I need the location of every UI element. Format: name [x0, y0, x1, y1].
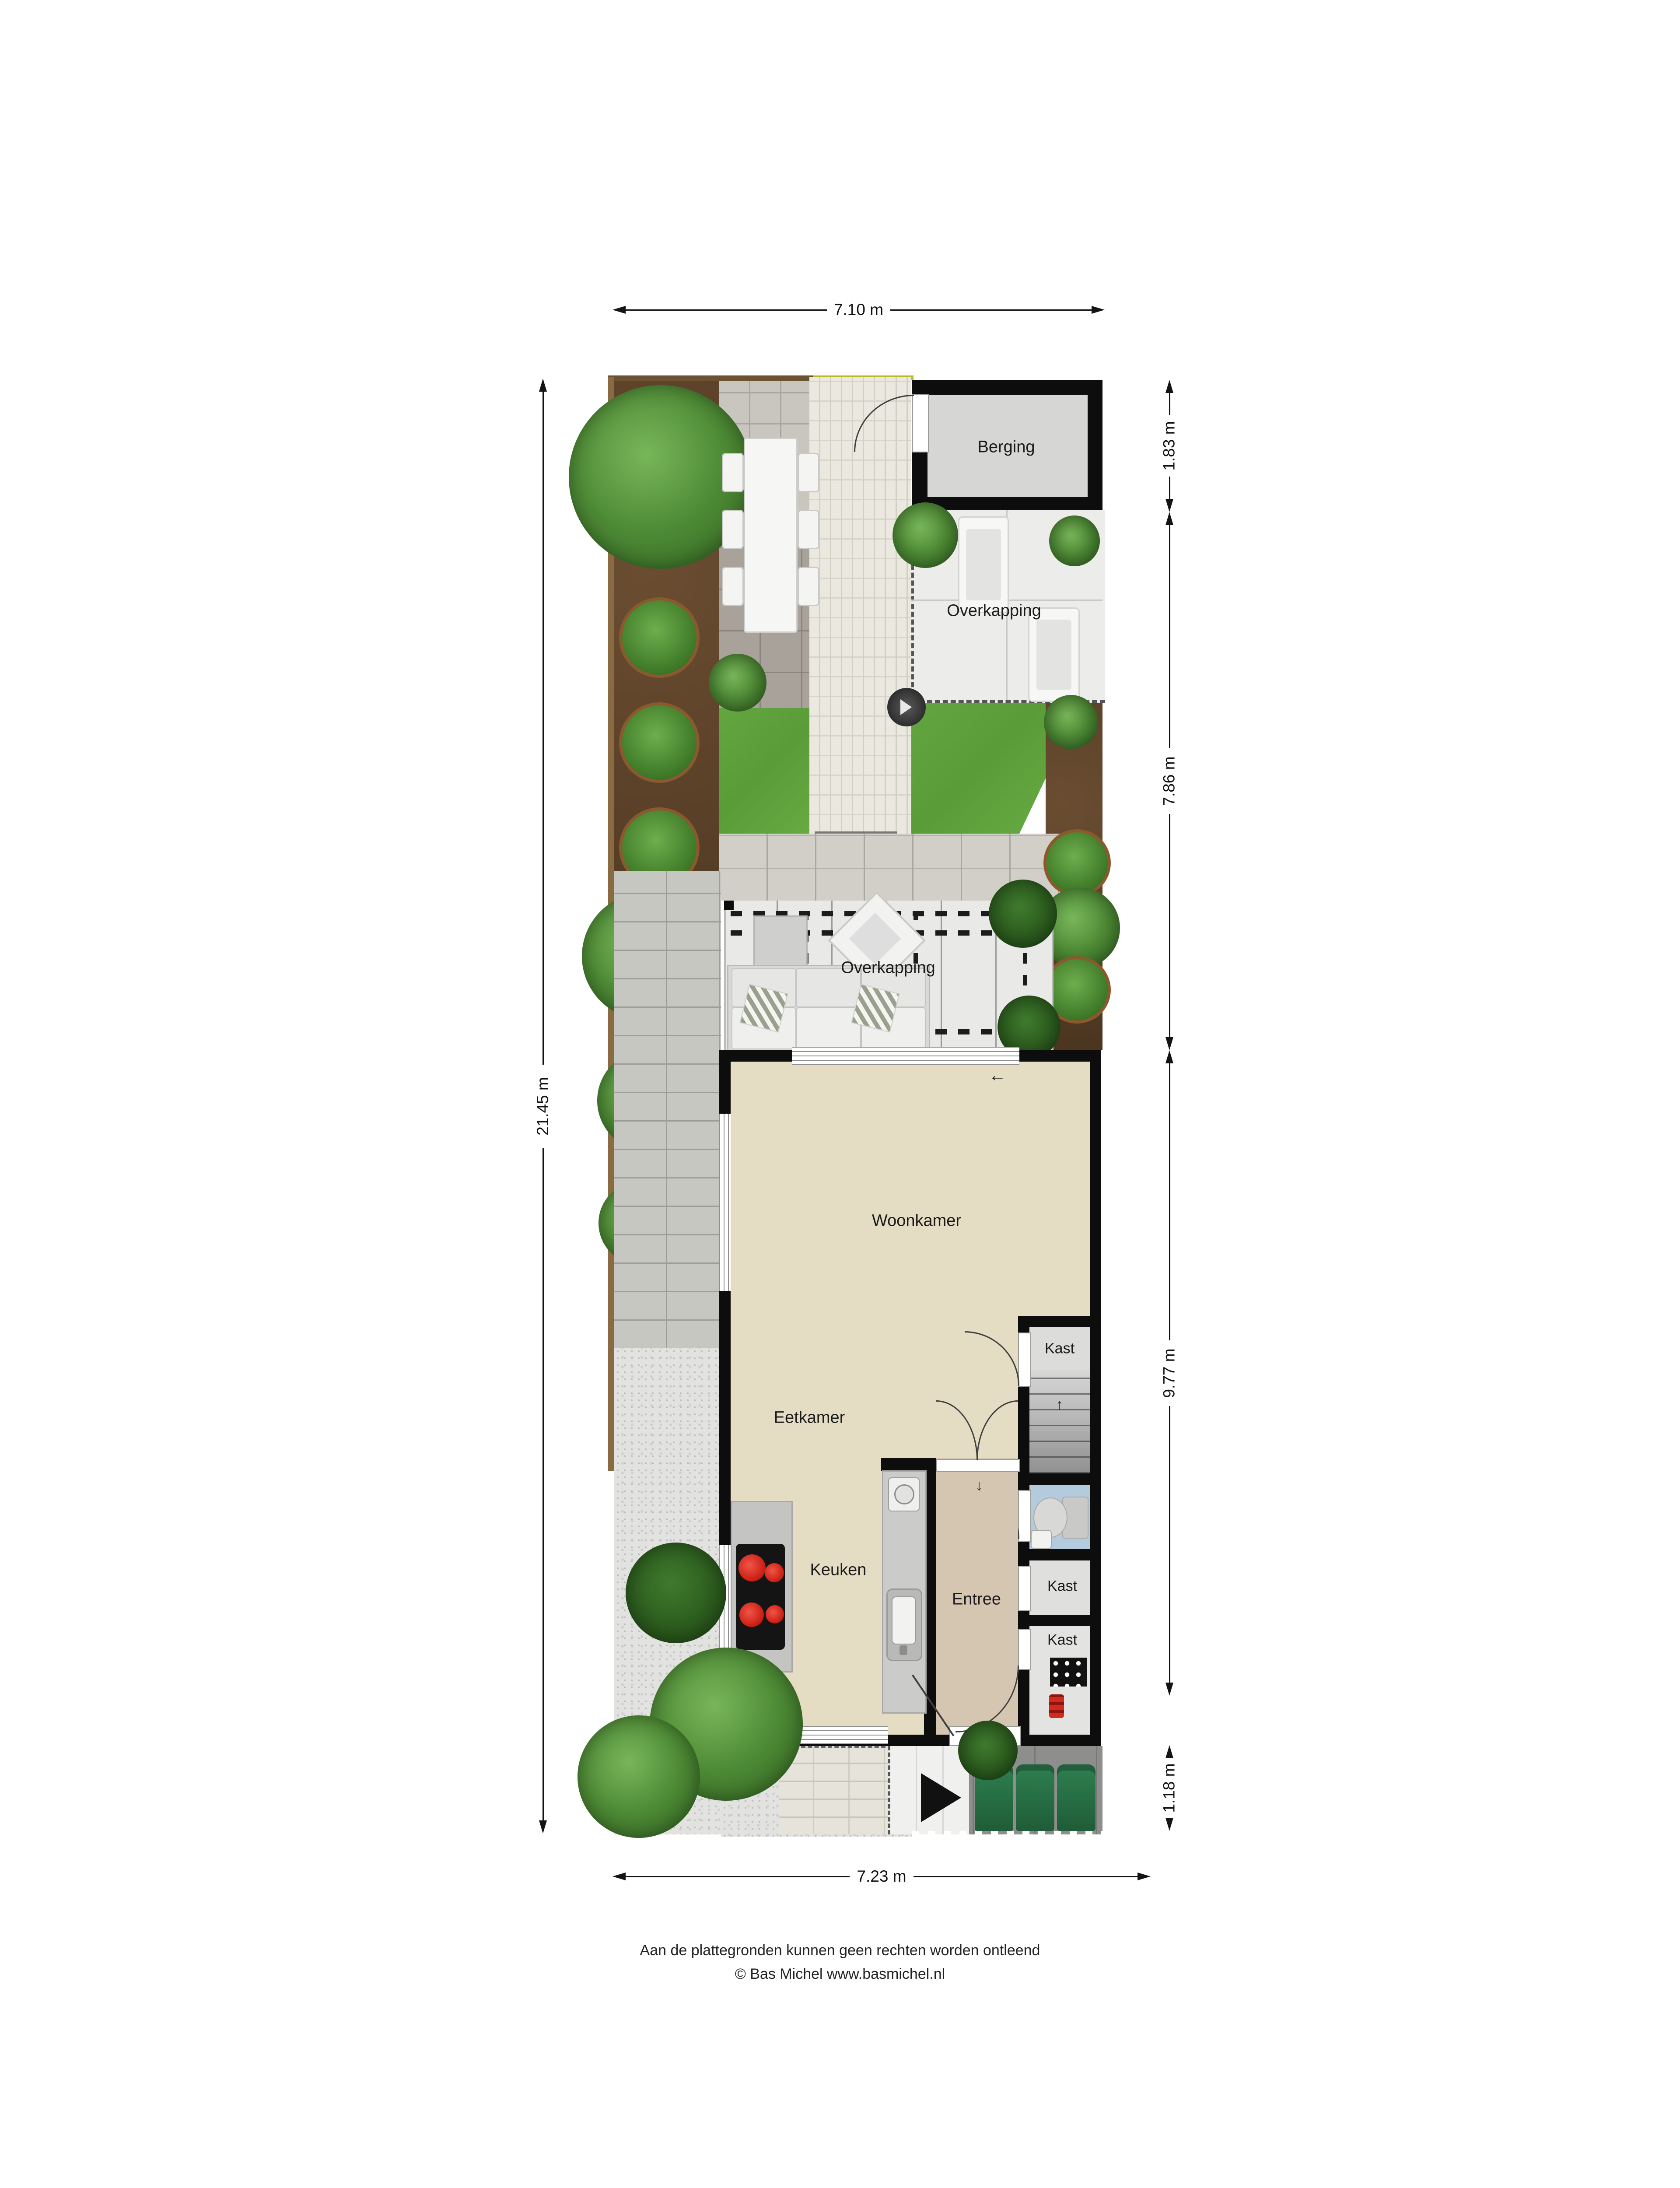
dimension-right-house: 9.77 m [1159, 1050, 1179, 1696]
dim-line [1169, 1406, 1170, 1683]
sink-faucet [899, 1645, 907, 1655]
corner-foliage [577, 1715, 700, 1838]
chair-cushion [1036, 620, 1072, 690]
garden-chair [798, 453, 819, 492]
room-label-overkapping-mid: Overkapping [841, 959, 935, 978]
waste-bin [1016, 1764, 1054, 1831]
lounge-chair [1028, 607, 1080, 702]
wall-kast2-bottom [1029, 1615, 1090, 1626]
dim-line [542, 392, 544, 1065]
bed-shrub [619, 702, 700, 783]
kast2-door [1018, 1566, 1031, 1611]
garden-chair [722, 510, 744, 549]
sink-basin [892, 1596, 916, 1645]
dim-label: 1.83 m [1159, 415, 1179, 477]
dim-arrow-icon [1165, 499, 1173, 512]
shrub-plant [892, 502, 958, 568]
stove-burner [765, 1563, 784, 1582]
garden-chair [798, 567, 819, 606]
roof-beam [941, 901, 942, 1050]
copyright-text: © Bas Michel www.basmichel.nl [0, 1966, 1680, 1983]
window-woonkamer [719, 1114, 731, 1291]
room-label-kast1: Kast [1045, 1340, 1074, 1357]
dim-arrow-icon [612, 306, 626, 314]
dim-line [1169, 1063, 1170, 1340]
room-label-kast3: Kast [1047, 1632, 1077, 1649]
slider-arrow-icon: ← [989, 1066, 1006, 1086]
room-label-berging: Berging [978, 438, 1035, 457]
garden-chair [722, 567, 744, 606]
wall-toilet-bottom [1029, 1549, 1090, 1560]
lawn-left [719, 708, 809, 835]
entrance-arrow-icon [921, 1773, 961, 1822]
dim-arrow-icon [539, 379, 547, 392]
stove-burner [739, 1602, 764, 1627]
chair-cushion [966, 529, 1001, 600]
dim-arrow-icon [1165, 380, 1173, 393]
dim-arrow-icon [1165, 512, 1173, 525]
meter-cabinet [1050, 1658, 1087, 1687]
room-label-overkapping-top: Overkapping [947, 602, 1041, 621]
dim-line [626, 1876, 850, 1877]
front-bush [958, 1721, 1018, 1780]
garden-dining-table [744, 438, 798, 633]
dim-arrow-icon [1165, 1683, 1173, 1696]
waste-bin [1057, 1764, 1095, 1831]
lawn-right [911, 700, 1046, 835]
double-door-opening [936, 1459, 1020, 1472]
wall-kast-top [1018, 1316, 1090, 1327]
dim-arrow-icon [1092, 306, 1105, 314]
dim-label: 7.23 m [850, 1867, 913, 1886]
dim-line [626, 309, 827, 311]
sofa-seat-cushion [796, 1007, 861, 1049]
hedge-bush [1043, 829, 1111, 897]
dimension-top: 7.10 m [612, 301, 1105, 319]
dim-line [913, 1876, 1137, 1877]
dim-label: 1.18 m [1159, 1758, 1179, 1818]
door-swing-arrow-icon: ↓ [976, 1477, 983, 1494]
dimension-right-berging: 1.83 m [1159, 380, 1179, 512]
room-label-eetkamer: Eetkamer [774, 1409, 845, 1427]
bed-shrub [619, 597, 700, 678]
dim-arrow-icon [1165, 1050, 1173, 1063]
dim-label: 7.86 m [1159, 748, 1179, 814]
dim-line [1169, 525, 1170, 748]
front-brick-patio [779, 1748, 888, 1834]
dim-line [890, 309, 1092, 311]
dim-arrow-icon [1165, 1037, 1173, 1050]
stove-burner [766, 1605, 784, 1623]
staircase [1029, 1370, 1090, 1473]
kast3-door [1018, 1629, 1031, 1670]
fire-extinguisher [1049, 1694, 1064, 1718]
shrub-plant [1044, 695, 1098, 749]
dishwasher-plate-icon [894, 1484, 914, 1504]
shrub-plant [1049, 515, 1100, 566]
disclaimer-text: Aan de plattegronden kunnen geen rechten… [0, 1942, 1680, 1959]
room-label-keuken: Keuken [810, 1561, 867, 1580]
dimension-right-sidewalk: 1.18 m [1159, 1745, 1179, 1834]
room-label-woonkamer: Woonkamer [872, 1212, 961, 1231]
fence-top [608, 375, 814, 381]
garden-chair [722, 453, 744, 492]
dim-arrow-icon [1165, 1745, 1173, 1758]
dim-arrow-icon [1165, 1818, 1173, 1831]
dimension-right-garden: 7.86 m [1159, 512, 1179, 1050]
curb-dashes [912, 1831, 1102, 1835]
toilet-door [1018, 1490, 1031, 1542]
stairs-direction-icon: ↑ [1056, 1396, 1064, 1414]
dim-arrow-icon [539, 1820, 547, 1834]
sliding-door [792, 1047, 1019, 1065]
dim-line [1169, 814, 1170, 1037]
dim-label: 7.10 m [827, 301, 890, 319]
wall-stairs-bottom [1029, 1473, 1090, 1485]
garden-plant [626, 1543, 726, 1643]
block-paving-strip [614, 871, 721, 1348]
dimension-left: 21.45 m [533, 379, 553, 1834]
floorplan-page: 7.10 m 21.45 m 1.83 m 7.86 m 9.77 m 1.18… [0, 0, 1680, 2188]
toilet-sink [1031, 1530, 1052, 1549]
dim-label: 9.77 m [1159, 1340, 1179, 1406]
room-label-kast2: Kast [1047, 1578, 1077, 1595]
dim-line [1169, 393, 1170, 415]
room-label-entree: Entree [952, 1590, 1001, 1609]
patio-bush [709, 654, 766, 712]
berging-door [912, 394, 929, 452]
lounge-chair [958, 516, 1009, 613]
dim-label: 21.45 m [533, 1065, 553, 1148]
dim-line [542, 1148, 544, 1821]
roof-post [724, 901, 734, 910]
kast1-door [1018, 1332, 1031, 1387]
stove-burner [738, 1554, 766, 1581]
dim-arrow-icon [1137, 1872, 1151, 1880]
terrace-plant [989, 880, 1057, 948]
dim-arrow-icon [612, 1872, 626, 1880]
garden-chair [798, 510, 819, 549]
dock-arrow-icon [900, 699, 912, 715]
dimension-bottom: 7.23 m [612, 1868, 1151, 1885]
dim-line [1169, 477, 1170, 499]
